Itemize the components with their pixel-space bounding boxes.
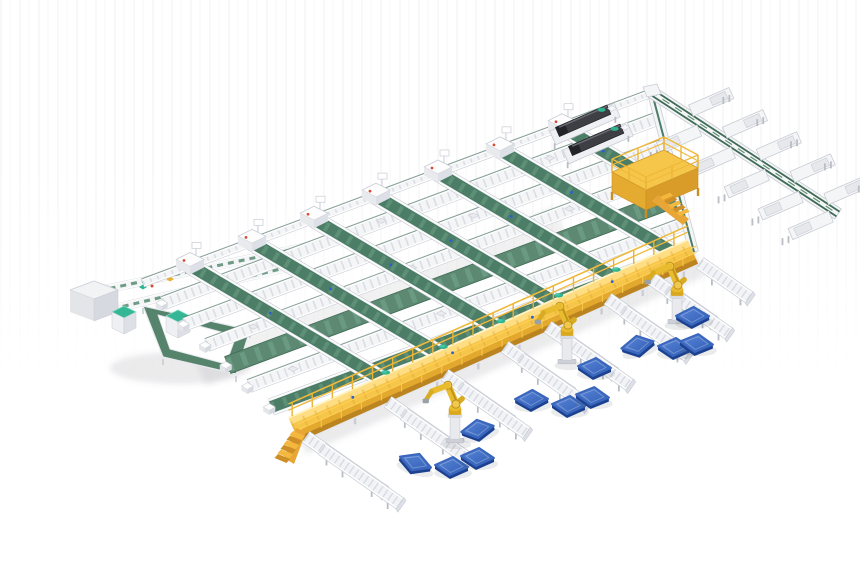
tray-chute	[790, 154, 835, 183]
blue-pallet	[395, 449, 438, 481]
loop-cabinet	[112, 306, 136, 334]
walkway-stairs	[275, 428, 307, 464]
tray-chute	[722, 110, 767, 139]
control-cabinet	[70, 281, 118, 321]
tray-chute	[756, 132, 801, 161]
tray-chute	[688, 87, 733, 116]
tray-chute	[719, 169, 770, 203]
sensor-dot	[151, 285, 154, 288]
roller-spur-conveyor	[318, 444, 406, 513]
roller-spur-conveyor	[696, 258, 755, 306]
blue-pallet	[575, 386, 614, 409]
tray-chute	[782, 211, 833, 245]
blue-pallet	[577, 358, 615, 380]
tray-chute	[752, 191, 803, 225]
sortation-system-illustration	[0, 0, 860, 580]
factory-3d-render	[0, 0, 860, 580]
blue-pallet	[679, 333, 718, 356]
tray-chute	[824, 176, 860, 205]
blue-pallet	[513, 389, 552, 414]
blue-pallet	[458, 415, 500, 446]
